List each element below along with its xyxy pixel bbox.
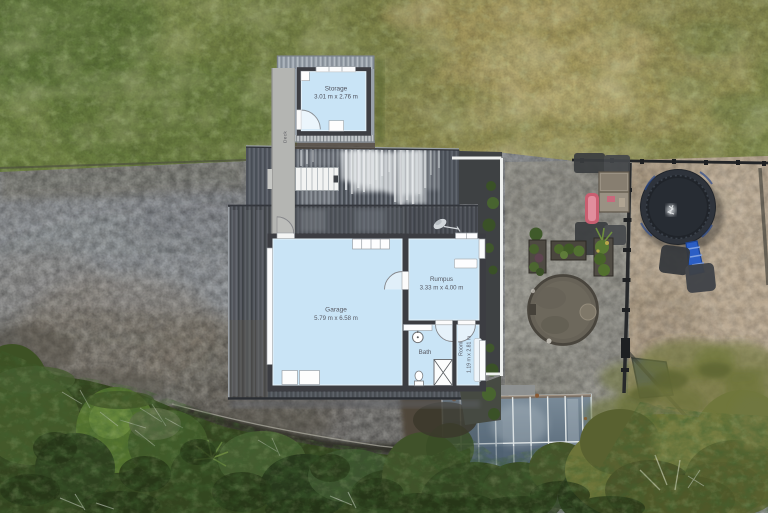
svg-text:Rumpus: Rumpus [430,276,453,283]
svg-text:Deck: Deck [283,131,289,143]
svg-text:Room: Room [459,341,465,356]
svg-text:Garage: Garage [325,307,347,314]
svg-text:3.33 m x 4.00 m: 3.33 m x 4.00 m [420,285,464,292]
svg-text:5.79 m x 6.58 m: 5.79 m x 6.58 m [314,315,358,322]
svg-text:3.01 m x 2.76 m: 3.01 m x 2.76 m [314,94,358,101]
svg-text:1.19 m x 2.81 m: 1.19 m x 2.81 m [467,336,473,373]
svg-text:Bath: Bath [419,349,432,356]
svg-text:Storage: Storage [325,86,348,93]
